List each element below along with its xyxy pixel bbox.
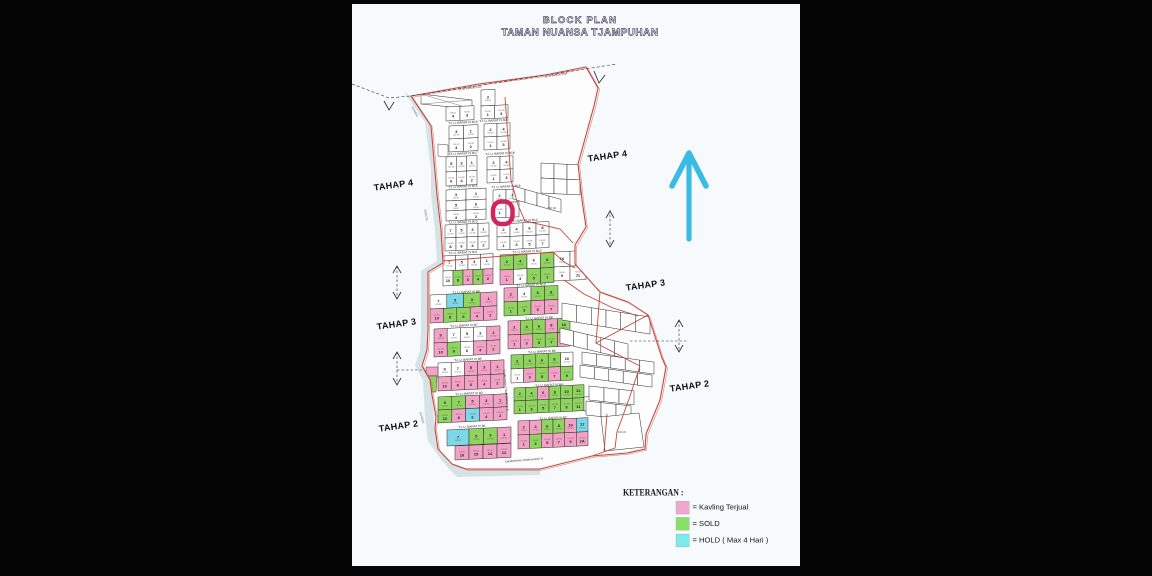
- svg-text:100 M2: 100 M2: [539, 363, 545, 365]
- svg-text:100 M2: 100 M2: [455, 371, 461, 373]
- svg-text:100 M2: 100 M2: [484, 264, 490, 266]
- svg-text:= Kavling Terjual: = Kavling Terjual: [693, 503, 749, 512]
- svg-text:500 M2: 500 M2: [548, 206, 557, 210]
- svg-text:100 M2: 100 M2: [539, 231, 545, 233]
- svg-text:16: 16: [460, 452, 465, 457]
- svg-text:100 M2: 100 M2: [514, 364, 520, 366]
- svg-text:100 M2: 100 M2: [451, 337, 457, 339]
- svg-text:100 M2: 100 M2: [536, 329, 542, 331]
- svg-text:10: 10: [565, 356, 570, 361]
- svg-text:100 M2: 100 M2: [471, 264, 477, 266]
- svg-text:100 M2: 100 M2: [473, 207, 479, 209]
- svg-text:100 M2: 100 M2: [552, 395, 558, 397]
- svg-text:100 M2: 100 M2: [490, 336, 496, 338]
- svg-text:100 M2: 100 M2: [459, 265, 465, 267]
- svg-text:2A: 2A: [580, 439, 585, 444]
- svg-text:100 M2: 100 M2: [452, 303, 458, 305]
- svg-text:12: 12: [576, 388, 581, 393]
- svg-text:100 M2: 100 M2: [453, 208, 459, 210]
- svg-text:10: 10: [434, 315, 439, 320]
- svg-text:100 M2: 100 M2: [456, 405, 462, 407]
- svg-text:10: 10: [568, 422, 573, 427]
- svg-text:100 M2: 100 M2: [481, 370, 487, 372]
- svg-text:100 M2: 100 M2: [441, 372, 447, 374]
- svg-text:100 M2: 100 M2: [483, 404, 489, 406]
- svg-text:100 M2: 100 M2: [447, 234, 453, 236]
- svg-text:100 M2: 100 M2: [490, 166, 496, 168]
- svg-text:100 M2: 100 M2: [521, 430, 527, 432]
- svg-text:100 M2: 100 M2: [528, 396, 534, 398]
- svg-text:KETERANGAN :: KETERANGAN :: [623, 489, 684, 499]
- svg-text:10: 10: [446, 278, 451, 283]
- svg-text:100 M2: 100 M2: [513, 232, 519, 234]
- svg-text:100 M2: 100 M2: [532, 430, 538, 432]
- svg-text:100 M2: 100 M2: [563, 394, 569, 396]
- svg-text:100 M2: 100 M2: [435, 304, 441, 306]
- svg-text:10: 10: [564, 389, 569, 394]
- svg-text:100 M2: 100 M2: [487, 438, 493, 440]
- svg-text:12: 12: [580, 422, 585, 427]
- svg-text:100 M2: 100 M2: [504, 265, 510, 267]
- svg-text:100 M2: 100 M2: [437, 338, 443, 340]
- svg-text:100 M2: 100 M2: [468, 371, 474, 373]
- svg-text:TAMAN NUANSA TJAMPUHAN: TAMAN NUANSA TJAMPUHAN: [501, 28, 658, 39]
- svg-text:100 M2: 100 M2: [464, 337, 470, 339]
- svg-text:100 M2: 100 M2: [494, 370, 500, 372]
- svg-text:10: 10: [438, 349, 443, 354]
- svg-text:100 M2: 100 M2: [544, 429, 550, 431]
- svg-text:100 M2: 100 M2: [458, 233, 464, 235]
- svg-text:100 M2: 100 M2: [487, 133, 493, 135]
- svg-text:100 M2: 100 M2: [442, 406, 448, 408]
- svg-text:100 M2: 100 M2: [517, 264, 523, 266]
- svg-text:100 M2: 100 M2: [497, 403, 503, 405]
- svg-text:100 M2: 100 M2: [458, 166, 464, 168]
- svg-text:100 M2: 100 M2: [526, 364, 532, 366]
- svg-text:100 M2: 100 M2: [453, 197, 459, 199]
- svg-text:100 M2: 100 M2: [485, 100, 491, 102]
- svg-text:100 M2: 100 M2: [531, 263, 537, 265]
- svg-text:100 M2: 100 M2: [567, 428, 573, 430]
- svg-text:100 M2: 100 M2: [579, 427, 585, 429]
- svg-text:100 M2: 100 M2: [521, 296, 527, 298]
- svg-text:14: 14: [488, 451, 493, 456]
- svg-text:100 M2: 100 M2: [503, 165, 509, 167]
- svg-text:100 M2: 100 M2: [453, 135, 459, 137]
- svg-text:100 M2: 100 M2: [500, 233, 506, 235]
- svg-text:100 M2: 100 M2: [500, 132, 506, 134]
- svg-text:100 M2: 100 M2: [544, 263, 550, 265]
- svg-text:100 M2: 100 M2: [473, 439, 479, 441]
- svg-text:100 M2: 100 M2: [477, 336, 483, 338]
- svg-text:100 M2: 100 M2: [485, 302, 491, 304]
- svg-text:100 M2: 100 M2: [469, 166, 475, 168]
- svg-text:100 M2: 100 M2: [540, 396, 546, 398]
- svg-text:100 M2: 100 M2: [446, 266, 452, 268]
- svg-text:12: 12: [502, 450, 507, 455]
- svg-text:15: 15: [474, 452, 479, 457]
- svg-text:100 M2: 100 M2: [535, 296, 541, 298]
- svg-text:100 M2: 100 M2: [575, 394, 581, 396]
- svg-text:10: 10: [443, 416, 448, 421]
- svg-text:100 M2: 100 M2: [468, 134, 474, 136]
- svg-text:100 M2: 100 M2: [511, 330, 517, 332]
- svg-text:100 M2: 100 M2: [469, 233, 475, 235]
- svg-text:100 M2: 100 M2: [564, 362, 570, 364]
- svg-text:100 M2: 100 M2: [551, 362, 557, 364]
- svg-text:100 M2: 100 M2: [508, 297, 514, 299]
- svg-text:100 M2: 100 M2: [473, 197, 479, 199]
- svg-text:10: 10: [442, 383, 447, 388]
- svg-text:100 M2: 100 M2: [517, 397, 523, 399]
- svg-text:100 M2: 100 M2: [556, 428, 562, 430]
- svg-text:100 M2: 100 M2: [501, 438, 507, 440]
- svg-text:100 M2: 100 M2: [448, 167, 454, 169]
- svg-text:100 M2: 100 M2: [523, 330, 529, 332]
- svg-text:100 M2: 100 M2: [469, 404, 475, 406]
- svg-text:= SOLD: = SOLD: [693, 519, 721, 528]
- svg-text:10: 10: [562, 322, 567, 327]
- svg-text:100 M2: 100 M2: [548, 328, 554, 330]
- svg-text:100 M2: 100 M2: [455, 440, 461, 442]
- svg-text:BLOCK PLAN: BLOCK PLAN: [543, 15, 617, 26]
- svg-text:= HOLD ( Max 4 Hari ): = HOLD ( Max 4 Hari ): [693, 536, 769, 545]
- svg-text:100 M2: 100 M2: [548, 295, 554, 297]
- svg-text:100 M2: 100 M2: [526, 231, 532, 233]
- svg-text:100 M2: 100 M2: [469, 302, 475, 304]
- svg-text:400 M2: 400 M2: [618, 431, 627, 434]
- svg-text:100 M2: 100 M2: [480, 232, 486, 234]
